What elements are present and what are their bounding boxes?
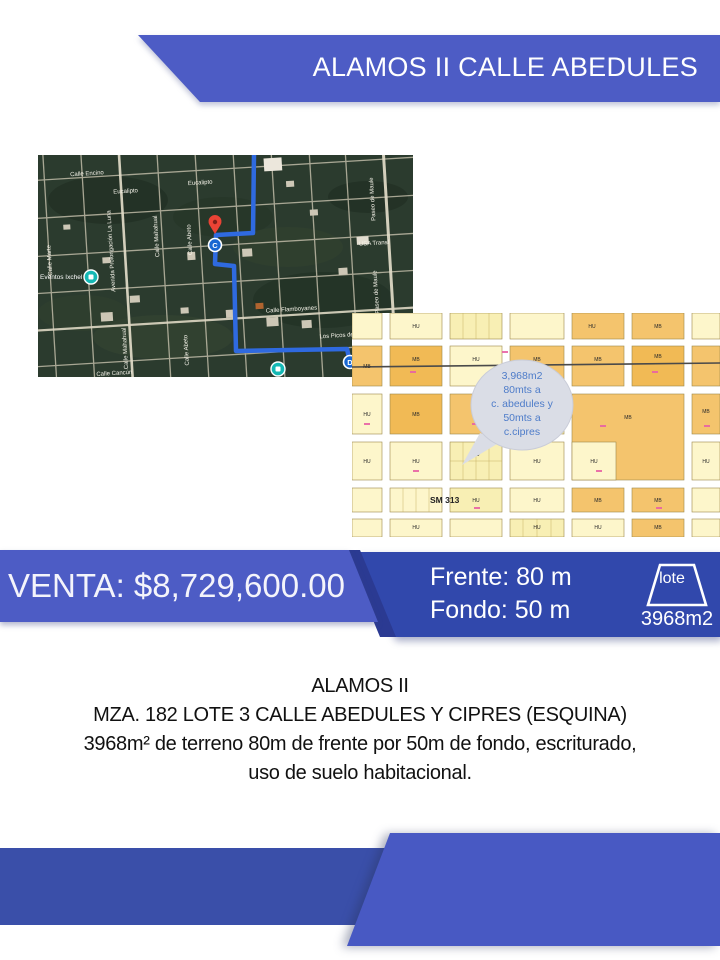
svg-text:HU: HU [472, 498, 480, 504]
cadastral-map-image: HU HU MB MB MB HU MB MB MB HU MB MB MB M… [352, 313, 720, 537]
header-banner-shape: ALAMOS II CALLE ABEDULES [0, 0, 720, 120]
flyer-page: ALAMOS II CALLE ABEDULES [0, 0, 720, 960]
svg-text:c.cipres: c.cipres [504, 426, 540, 438]
lote-icon-label: lote [644, 570, 700, 588]
property-description: ALAMOS II MZA. 182 LOTE 3 CALLE ABEDULES… [40, 672, 680, 788]
cadastral-map-graphic: HU HU MB MB MB HU MB MB MB HU MB MB MB M… [352, 313, 720, 537]
svg-text:MB: MB [702, 409, 710, 415]
footer-band-right-shape [340, 833, 720, 946]
svg-text:C: C [212, 241, 218, 250]
svg-text:MB: MB [654, 354, 662, 360]
svg-text:HU: HU [412, 525, 420, 531]
svg-text:c. abedules y: c. abedules y [491, 398, 554, 410]
svg-text:HU: HU [702, 459, 710, 465]
street-label: Calle Cancún [96, 370, 132, 377]
dimensions-text: Frente: 80 m Fondo: 50 m [430, 561, 572, 627]
marker-c-icon: C [209, 239, 222, 252]
svg-text:HU: HU [590, 459, 598, 465]
header-banner: ALAMOS II CALLE ABEDULES [0, 0, 720, 120]
svg-text:HU: HU [533, 459, 541, 465]
footer-band-left [0, 848, 390, 925]
fondo-value: Fondo: 50 m [430, 594, 572, 627]
svg-text:HU: HU [533, 498, 541, 504]
svg-text:MB: MB [624, 415, 632, 421]
lote-area-value: 3968m2 [638, 608, 716, 631]
poi-icon [271, 362, 285, 376]
description-line: 3968m² de terreno 80m de frente por 50m … [40, 730, 680, 759]
svg-text:HU: HU [594, 525, 602, 531]
price-banner-shape: VENTA: $8,729,600.00 [0, 550, 380, 622]
footer-band-right [340, 833, 720, 946]
svg-text:HU: HU [412, 459, 420, 465]
svg-text:HU: HU [363, 459, 371, 465]
svg-text:MB: MB [363, 364, 371, 370]
svg-text:HU: HU [472, 357, 480, 363]
svg-text:MB: MB [594, 357, 602, 363]
price-banner: VENTA: $8,729,600.00 [0, 550, 380, 622]
svg-text:MB: MB [654, 525, 662, 531]
price-value: VENTA: $8,729,600.00 [8, 550, 345, 622]
description-line: MZA. 182 LOTE 3 CALLE ABEDULES Y CIPRES … [40, 701, 680, 730]
svg-text:MB: MB [594, 498, 602, 504]
svg-text:80mts a: 80mts a [503, 384, 541, 396]
description-line: uso de suelo habitacional. [40, 759, 680, 788]
svg-text:HU: HU [363, 412, 371, 418]
poi-label: Eventos Ixchel [40, 274, 83, 281]
frente-value: Frente: 80 m [430, 561, 572, 594]
dimensions-banner-shape: Frente: 80 m Fondo: 50 m lote 3968m2 [350, 552, 720, 637]
description-line: ALAMOS II [40, 672, 680, 701]
svg-text:HU: HU [533, 525, 541, 531]
page-title: ALAMOS II CALLE ABEDULES [313, 52, 698, 83]
svg-text:MB: MB [412, 357, 420, 363]
lote-badge: lote 3968m2 [638, 560, 716, 632]
dimensions-banner: Frente: 80 m Fondo: 50 m lote 3968m2 [350, 552, 720, 637]
poi-icon [84, 270, 98, 284]
svg-text:3,968m2: 3,968m2 [502, 370, 543, 382]
svg-text:MB: MB [654, 498, 662, 504]
svg-text:HU: HU [412, 324, 420, 330]
sector-label: SM 313 [430, 495, 460, 505]
svg-text:HU: HU [588, 324, 596, 330]
svg-text:50mts a: 50mts a [503, 412, 541, 424]
svg-text:MB: MB [654, 324, 662, 330]
svg-text:MB: MB [412, 412, 420, 418]
